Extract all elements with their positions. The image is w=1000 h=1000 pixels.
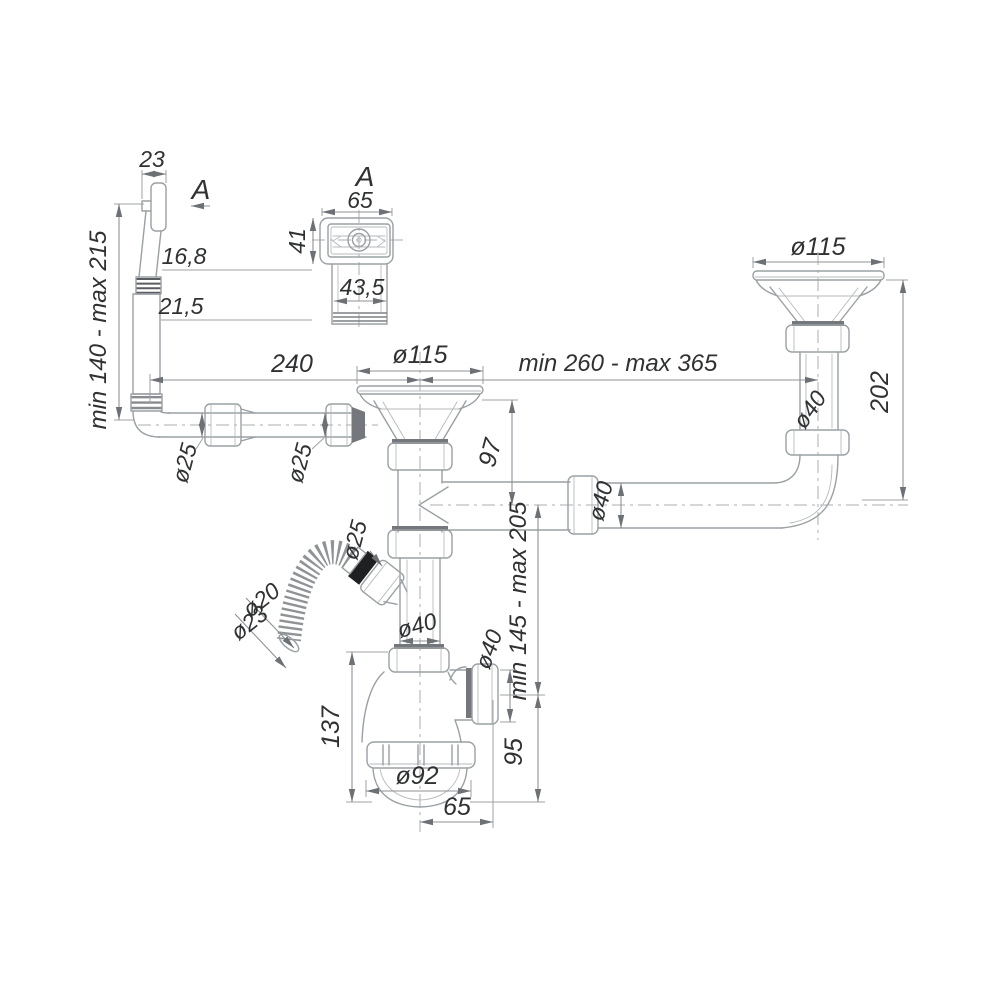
drawing-canvas: 23 A min 140 - max 215 16,8 21,5 A 65 41…: [0, 0, 1000, 1000]
dim-right-drop: 202: [866, 371, 894, 414]
dim-branch-pipe: ø40: [583, 478, 618, 523]
dim-head-width: 23: [138, 146, 165, 172]
dimensions: 23 A min 140 - max 215 16,8 21,5 A 65 41…: [85, 146, 908, 828]
dim-detail-width: 65: [347, 187, 373, 213]
dim-outlet-offset: 65: [443, 793, 471, 821]
corrugated-hose: [289, 552, 350, 640]
dim-overflow-d1: ø25: [167, 440, 202, 485]
dim-outlet-drop: 95: [500, 738, 528, 766]
washing-machine-branch: [277, 542, 414, 654]
detail-view-a: [320, 218, 393, 324]
dim-span-left: 240: [270, 350, 313, 378]
dim-right-pipe: ø40: [787, 386, 831, 434]
dim-cup: ø92: [395, 762, 438, 790]
dim-detail-neck: 43,5: [340, 274, 385, 300]
dim-overflow-d2: ø25: [282, 440, 317, 485]
dim-thread-od: 16,8: [162, 243, 207, 269]
dim-trap-outlet: ø40: [469, 626, 507, 672]
dim-detail-height: 41: [284, 228, 310, 254]
dim-trap-height: 137: [317, 705, 345, 748]
dim-tube-od: 21,5: [158, 293, 204, 319]
dim-span-right: min 260 - max 365: [519, 350, 718, 377]
technical-drawing: 23 A min 140 - max 215 16,8 21,5 A 65 41…: [0, 0, 1000, 1000]
dim-overflow-range: min 140 - max 215: [85, 230, 112, 429]
dim-branch-drop: 97: [473, 435, 508, 470]
dim-center-strainer: ø115: [392, 341, 447, 369]
dim-right-strainer: ø115: [790, 233, 845, 261]
view-arrow-label: A: [190, 174, 211, 205]
